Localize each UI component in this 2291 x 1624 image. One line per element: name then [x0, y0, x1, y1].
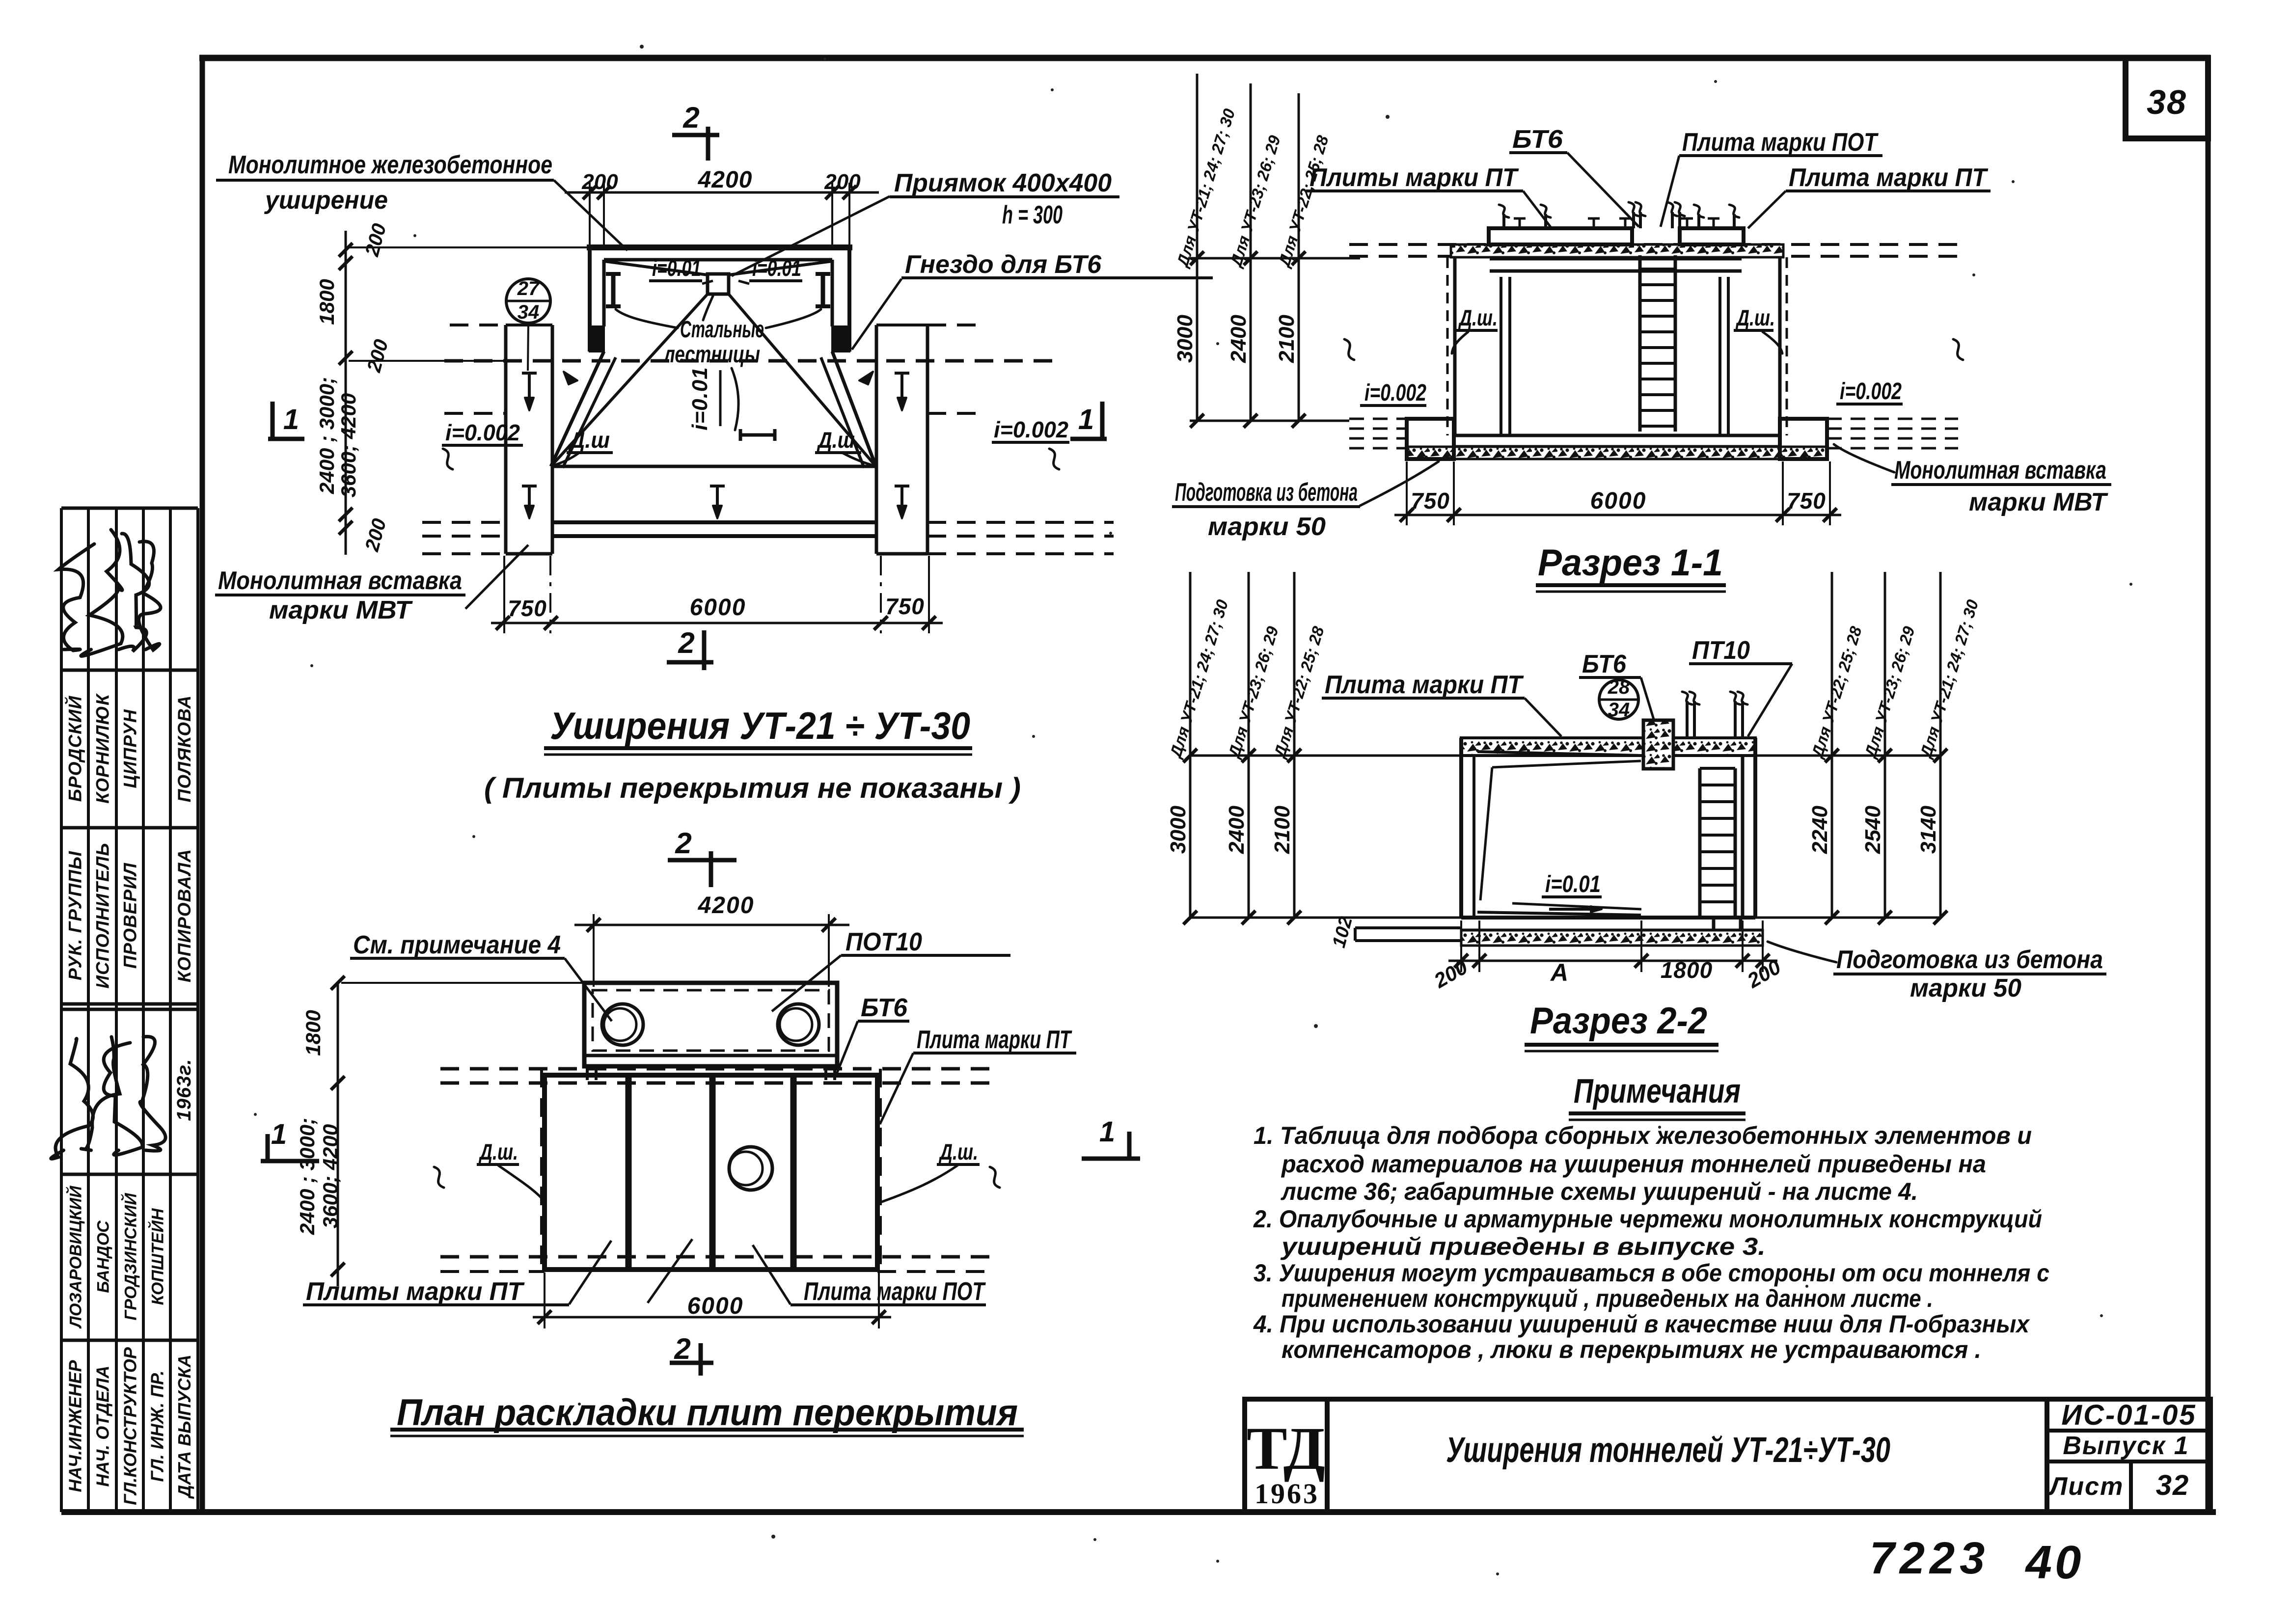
- svg-text:Д.ш.: Д.ш.: [1735, 305, 1775, 330]
- svg-text:Плита марки ПОТ: Плита марки ПОТ: [804, 1277, 986, 1306]
- svg-text:ЦИПРУН: ЦИПРУН: [120, 709, 140, 788]
- svg-text:ПРОВЕРИЛ: ПРОВЕРИЛ: [120, 862, 140, 969]
- svg-text:Д.ш.: Д.ш.: [938, 1139, 978, 1164]
- svg-text:См. примечание 4: См. примечание 4: [353, 931, 561, 959]
- svg-text:ЛОЗАРОВИЦКИЙ: ЛОЗАРОВИЦКИЙ: [66, 1185, 85, 1329]
- svg-text:Плита марки ПТ: Плита марки ПТ: [917, 1026, 1072, 1054]
- svg-text:ПОЛЯКОВА: ПОЛЯКОВА: [174, 695, 194, 802]
- svg-text:Плиты марки ПТ: Плиты марки ПТ: [1309, 163, 1519, 192]
- svg-text:ГЛ. ИНЖ. ПР.: ГЛ. ИНЖ. ПР.: [147, 1370, 167, 1482]
- svg-text:3600; 4200: 3600; 4200: [337, 393, 360, 498]
- svg-text:i=0.01: i=0.01: [652, 255, 701, 281]
- svg-text:КОПШТЕЙН: КОПШТЕЙН: [148, 1208, 167, 1305]
- svg-text:Уширения УТ-21 ÷ УТ-30: Уширения УТ-21 ÷ УТ-30: [550, 704, 970, 747]
- svg-text:1963: 1963: [1255, 1478, 1319, 1510]
- svg-text:НАЧ.ИНЖЕНЕР: НАЧ.ИНЖЕНЕР: [65, 1360, 85, 1492]
- svg-text:План раскладки плит перекры: План раскладки плит перекрытия: [397, 1392, 1018, 1434]
- svg-text:32: 32: [2156, 1469, 2190, 1501]
- svg-text:ГЛ.КОНСТРУКТОР: ГЛ.КОНСТРУКТОР: [120, 1347, 140, 1505]
- svg-text:i=0.002: i=0.002: [445, 420, 520, 445]
- svg-text:Плита марки ПОТ: Плита марки ПОТ: [1682, 128, 1879, 157]
- svg-text:i=0.002: i=0.002: [994, 417, 1068, 442]
- svg-text:марки МВТ: марки МВТ: [269, 596, 413, 624]
- svg-text:28: 28: [1608, 677, 1630, 698]
- svg-text:i=0.002: i=0.002: [1364, 380, 1426, 406]
- svg-text:компенсаторов , люки в пере: компенсаторов , люки в перекрытиях не ус…: [1282, 1336, 1981, 1363]
- svg-text:Уширения тоннелей УТ-21÷УТ-30: Уширения тоннелей УТ-21÷УТ-30: [1446, 1431, 1890, 1470]
- svg-text:1: 1: [1078, 404, 1094, 435]
- svg-text:1: 1: [271, 1118, 287, 1150]
- svg-text:2: 2: [675, 827, 691, 860]
- svg-text:марки 50: марки 50: [1910, 974, 2021, 1002]
- svg-text:КОПИРОВАЛА: КОПИРОВАЛА: [174, 849, 194, 982]
- svg-text:Плита марки ПТ: Плита марки ПТ: [1325, 671, 1524, 699]
- svg-text:уширение: уширение: [264, 186, 388, 215]
- svg-text:А: А: [1550, 959, 1568, 986]
- svg-text:2400 ; 3000;: 2400 ; 3000;: [315, 377, 338, 494]
- svg-text:200: 200: [824, 170, 861, 194]
- svg-text:750: 750: [1411, 488, 1450, 514]
- svg-text:6000: 6000: [1590, 488, 1647, 514]
- svg-text:ПОТ10: ПОТ10: [845, 928, 922, 956]
- svg-text:марки 50: марки 50: [1208, 513, 1326, 541]
- svg-text:Приямок 400х400: Приямок 400х400: [894, 169, 1112, 197]
- svg-text:БРОДСКИЙ: БРОДСКИЙ: [65, 695, 85, 802]
- svg-text:Разрез 2-2: Разрез 2-2: [1530, 1000, 1707, 1042]
- svg-text:Выпуск 1: Выпуск 1: [2063, 1432, 2189, 1460]
- svg-text:3140: 3140: [1916, 806, 1940, 854]
- svg-text:ТД: ТД: [1247, 1415, 1325, 1482]
- svg-text:Монолитное железобетонное: Монолитное железобетонное: [228, 151, 552, 179]
- svg-text:i=0.002: i=0.002: [1840, 379, 1902, 405]
- svg-text:листе 36; габаритные схемы: листе 36; габаритные схемы уширений - на…: [1281, 1178, 1918, 1205]
- svg-text:расход материалов на уширен: расход материалов на уширения тоннелей п…: [1281, 1150, 1986, 1178]
- svg-text:Гнездо для БТ6: Гнездо для БТ6: [905, 250, 1102, 279]
- svg-text:6000: 6000: [690, 595, 746, 621]
- svg-text:Стальные: Стальные: [680, 317, 764, 343]
- svg-text:БАНДОС: БАНДОС: [94, 1220, 113, 1293]
- svg-text:3000: 3000: [1173, 315, 1197, 363]
- svg-text:Примечания: Примечания: [1574, 1072, 1741, 1110]
- svg-text:Д.ш.: Д.ш.: [478, 1139, 518, 1164]
- svg-text:2100: 2100: [1275, 315, 1299, 363]
- svg-text:i=0.01: i=0.01: [688, 367, 712, 431]
- svg-text:4200: 4200: [698, 167, 753, 193]
- svg-text:Подготовка из бетона: Подготовка из бетона: [1836, 946, 2103, 974]
- svg-text:Д.ш: Д.ш: [568, 427, 610, 453]
- svg-text:2400: 2400: [1227, 315, 1251, 363]
- svg-text:1: 1: [283, 404, 299, 435]
- svg-text:2: 2: [678, 626, 694, 659]
- svg-text:1800: 1800: [301, 1010, 325, 1056]
- svg-text:Д.ш.: Д.ш.: [1458, 305, 1498, 330]
- svg-text:ГРОДЗИНСКИЙ: ГРОДЗИНСКИЙ: [121, 1192, 140, 1321]
- svg-text:Монолитная вставка: Монолитная вставка: [218, 567, 462, 595]
- svg-text:марки МВТ: марки МВТ: [1969, 488, 2108, 516]
- svg-text:применением конструкций , при: применением конструкций , приведеных на …: [1282, 1285, 1933, 1312]
- svg-text:ИС-01-05: ИС-01-05: [2061, 1399, 2196, 1431]
- svg-text:3000: 3000: [1166, 806, 1190, 854]
- svg-text:i=0.01: i=0.01: [1545, 871, 1601, 897]
- svg-text:1963г.: 1963г.: [173, 1059, 195, 1121]
- svg-text:Плита марки ПТ: Плита марки ПТ: [1789, 163, 1989, 192]
- svg-text:750: 750: [508, 595, 547, 621]
- svg-text:Монолитная вставка: Монолитная вставка: [1894, 456, 2106, 485]
- svg-text:уширений приведены в выпуск: уширений приведены в выпуске 3.: [1280, 1233, 1766, 1260]
- svg-text:3600; 4200: 3600; 4200: [319, 1124, 342, 1229]
- svg-text:ИСПОЛНИТЕЛЬ: ИСПОЛНИТЕЛЬ: [93, 842, 113, 988]
- svg-text:2400 ; 3000;: 2400 ; 3000;: [296, 1118, 319, 1235]
- svg-text:1. Таблица для подбора сбор: 1. Таблица для подбора сборных железобет…: [1254, 1122, 2032, 1149]
- svg-text:лестницы: лестницы: [663, 342, 760, 368]
- svg-text:2540: 2540: [1861, 806, 1885, 854]
- svg-text:2: 2: [682, 101, 699, 134]
- svg-text:ДАТА ВЫПУСКА: ДАТА ВЫПУСКА: [174, 1354, 194, 1499]
- svg-text:БТ6: БТ6: [1582, 650, 1627, 678]
- svg-text:38: 38: [2147, 83, 2187, 121]
- svg-text:БТ6: БТ6: [861, 994, 908, 1022]
- svg-text:НАЧ. ОТДЕЛА: НАЧ. ОТДЕЛА: [93, 1366, 113, 1487]
- svg-text:КОРНИЛЮК: КОРНИЛЮК: [93, 693, 113, 804]
- svg-text:3. Уширения могут устраивать: 3. Уширения могут устраиваться в обе сто…: [1254, 1259, 2049, 1287]
- svg-text:1: 1: [1099, 1116, 1115, 1148]
- svg-text:Подготовка из бетона: Подготовка из бетона: [1175, 478, 1358, 507]
- svg-text:ПТ10: ПТ10: [1692, 636, 1750, 665]
- svg-text:Лист: Лист: [2048, 1472, 2124, 1501]
- svg-text:1800: 1800: [1661, 957, 1713, 983]
- svg-text:7223: 7223: [1870, 1533, 1990, 1583]
- svg-text:4. При использовании уширени: 4. При использовании уширений в качестве…: [1253, 1310, 2030, 1338]
- svg-text:750: 750: [885, 594, 925, 619]
- svg-text:200: 200: [581, 170, 618, 194]
- svg-text:34: 34: [518, 301, 540, 323]
- svg-text:Разрез 1-1: Разрез 1-1: [1538, 542, 1723, 584]
- svg-text:34: 34: [1608, 699, 1630, 721]
- svg-text:БТ6: БТ6: [1512, 125, 1563, 154]
- svg-text:2. Опалубочные и арматурные: 2. Опалубочные и арматурные чертежи моно…: [1253, 1205, 2042, 1233]
- svg-text:Д.ш.: Д.ш.: [817, 427, 860, 453]
- svg-text:Плиты марки ПТ: Плиты марки ПТ: [306, 1277, 525, 1306]
- svg-text:( Плиты перекрытия не показ: ( Плиты перекрытия не показаны ): [484, 772, 1021, 804]
- svg-text:i=0.01: i=0.01: [752, 255, 801, 281]
- svg-text:2240: 2240: [1808, 806, 1832, 854]
- svg-text:2: 2: [674, 1332, 690, 1365]
- svg-text:4200: 4200: [698, 893, 755, 919]
- svg-text:6000: 6000: [687, 1293, 744, 1319]
- svg-text:27: 27: [517, 278, 540, 299]
- svg-text:750: 750: [1787, 488, 1826, 514]
- svg-text:2400: 2400: [1225, 806, 1249, 854]
- svg-text:РУК. ГРУППЫ: РУК. ГРУППЫ: [65, 851, 85, 980]
- svg-text:2100: 2100: [1270, 806, 1294, 854]
- svg-text:h = 300: h = 300: [1002, 201, 1063, 229]
- svg-text:40: 40: [2025, 1536, 2084, 1589]
- svg-text:1800: 1800: [315, 279, 338, 325]
